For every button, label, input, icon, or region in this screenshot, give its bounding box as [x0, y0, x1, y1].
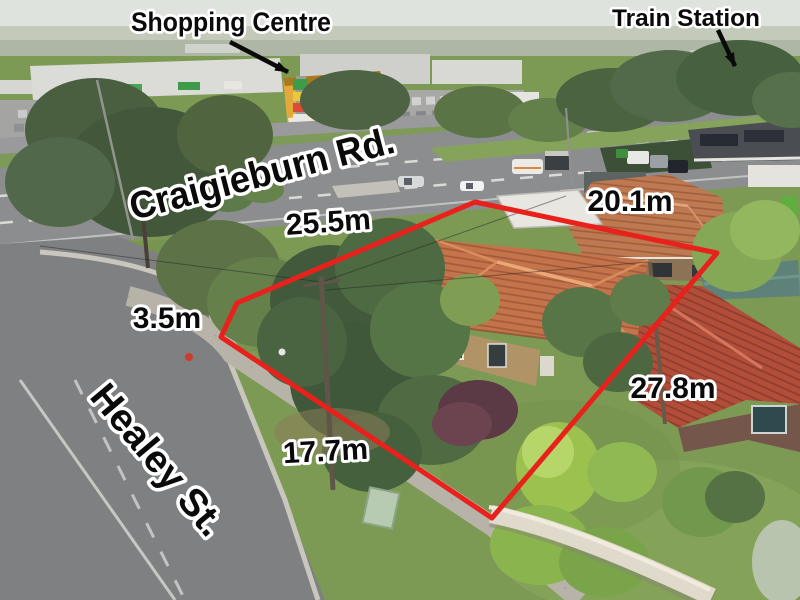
aerial-photo-canvas: Shopping Centre Train Station Craigiebur…: [0, 0, 800, 600]
aerial-photo: Shopping Centre Train Station Craigiebur…: [0, 0, 800, 600]
parked-car: [627, 151, 649, 164]
measurement-north-east: 20.1m: [587, 185, 672, 218]
train-station-label: Train Station: [612, 5, 760, 32]
measurement-corner-splay: 3.5m: [133, 302, 201, 335]
porch: [540, 356, 554, 376]
white-building: [748, 165, 800, 187]
dumpster: [616, 149, 628, 158]
shopping-centre-label: Shopping Centre: [131, 7, 331, 37]
purple-plum-tree: [432, 402, 492, 446]
utility-box: [363, 487, 400, 528]
measurement-north-frontage: 25.5m: [285, 203, 372, 242]
bollard: [279, 349, 286, 356]
van: [512, 159, 543, 174]
hydrant-marker: [185, 353, 193, 361]
measurement-side-street-frontage: 17.7m: [282, 433, 369, 470]
parked-car: [650, 155, 668, 168]
parked-car: [668, 160, 688, 173]
window: [488, 344, 506, 367]
measurement-south-east: 27.8m: [630, 372, 715, 405]
